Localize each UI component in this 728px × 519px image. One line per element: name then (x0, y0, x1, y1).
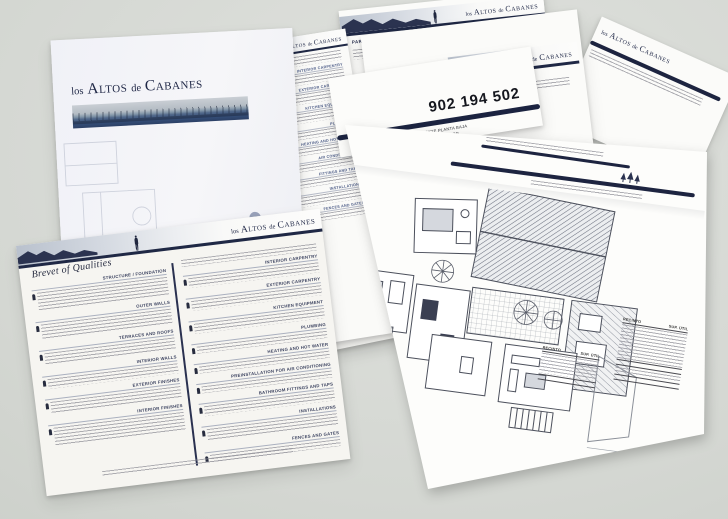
figure-bullet-icon (43, 380, 47, 386)
brand-wordmark: los Altos de Cabanes (231, 216, 316, 236)
photo-of-brochures: los Altos de Cabanes los Altos de Cabane… (0, 0, 728, 519)
floor-plan-drawing (303, 168, 667, 457)
footer-fine-print (102, 448, 293, 476)
figure-bullet-icon (183, 279, 187, 285)
person-silhouette-icon (431, 10, 439, 25)
figure-bullet-icon (197, 388, 201, 394)
person-silhouette-icon (132, 235, 142, 252)
trees-logo-icon (620, 171, 641, 186)
figure-bullet-icon (45, 403, 49, 409)
plan-content (289, 116, 701, 519)
figure-bullet-icon (49, 429, 53, 435)
figure-bullet-icon (194, 368, 198, 374)
figure-bullet-icon (189, 325, 193, 331)
qualities-sheet: los Altos de Cabanes Brevet of Qualities… (16, 209, 350, 496)
plan-paper: RECINTO SUP. ÚTIL RECINTO SUP. ÚTIL (296, 96, 724, 498)
qualities-column-left: STRUCTURE / FOUNDATION OUTER WALLS TERRA… (31, 268, 186, 451)
qualities-column-right: INTERIOR CARPENTRY EXTERIOR CARPENTRY KI… (181, 243, 341, 466)
marina-panorama-photo (72, 96, 249, 128)
figure-bullet-icon (192, 348, 196, 354)
figure-bullet-icon (39, 355, 43, 361)
figure-bullet-icon (186, 302, 190, 308)
cover-title: los Altos de Cabanes (71, 75, 203, 100)
figure-bullet-icon (199, 408, 203, 414)
figure-bullet-icon (36, 326, 40, 332)
area-table-upper: RECINTO SUP. ÚTIL (614, 317, 689, 389)
figure-bullet-icon (32, 294, 36, 300)
figure-bullet-icon (202, 430, 206, 436)
floor-plan-sheet: RECINTO SUP. ÚTIL RECINTO SUP. ÚTIL (296, 96, 724, 498)
